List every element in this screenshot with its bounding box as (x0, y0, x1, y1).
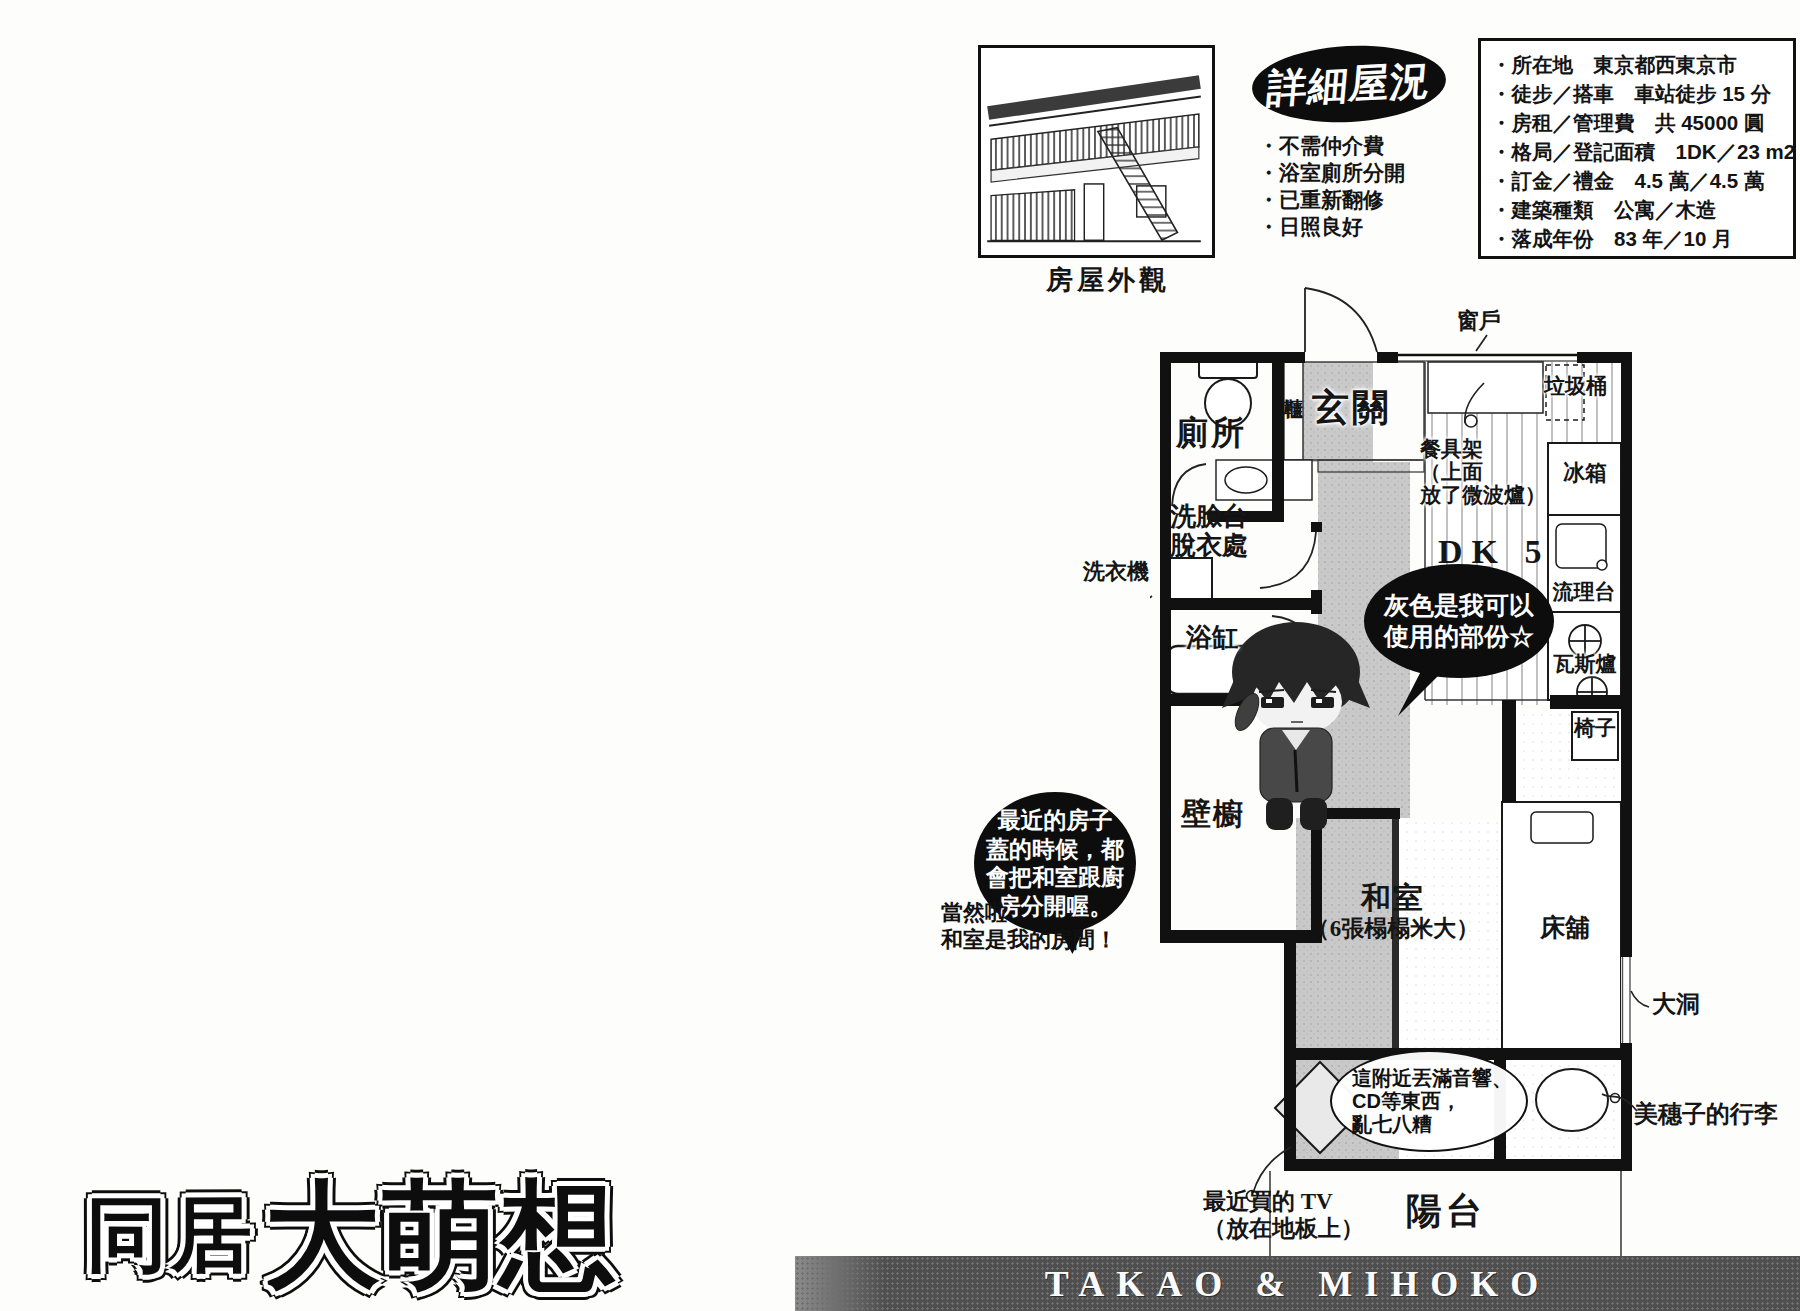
house-sketch (981, 48, 1206, 249)
hole-label: 大洞 (1652, 992, 1700, 1018)
detail-badge-label: 詳細屋況 (1265, 52, 1434, 116)
series-title-part1: 同居 (86, 1181, 254, 1291)
detail-row: ・建築種類 公寓／木造 (1491, 195, 1783, 224)
detail-row: ・徒步／搭車 車站徒步 15 分 (1491, 79, 1783, 108)
first-floor-railing (991, 190, 1075, 240)
washroom-door-arc (1260, 532, 1316, 588)
character-names: TAKAO & MIHOKO (1045, 1263, 1550, 1305)
highlight-item: ・不需仲介費 (1258, 132, 1405, 159)
chair-box (1572, 712, 1618, 760)
wall-hole (1621, 957, 1632, 1043)
roof (987, 75, 1201, 120)
hole-pointer (1631, 991, 1649, 1007)
faucet (1597, 560, 1607, 570)
ofcourse-caption: 當然啦， 和室是我的房間！ (941, 899, 1117, 953)
detail-row: ・所在地 東京都西東京市 (1491, 50, 1783, 79)
luggage-circle (1536, 1069, 1608, 1131)
washing-machine (1166, 558, 1212, 602)
messy-area-bubble: 這附近丟滿音響、 CD等東西， 亂七八糟 (1330, 1050, 1528, 1152)
pillow (1531, 812, 1593, 843)
highlight-item: ・已重新翻修 (1258, 186, 1405, 213)
highlight-item: ・浴室廁所分開 (1258, 159, 1405, 186)
detail-badge: 詳細屋況 (1250, 41, 1448, 127)
series-title-part2: 大萌想 (264, 1158, 618, 1311)
detail-row: ・訂金／禮金 4.5 萬／4.5 萬 (1491, 166, 1783, 195)
footer-bar: TAKAO & MIHOKO (795, 1256, 1800, 1311)
detail-row: ・格局／登記面積 1DK／23 m2 (1491, 137, 1783, 166)
washing-machine-label: 洗衣機 (1083, 560, 1149, 584)
toilet-bowl (1205, 379, 1251, 427)
house-photo-frame (978, 45, 1215, 258)
series-title: 同居 大萌想 (86, 1158, 618, 1311)
washer-pointer (1150, 588, 1152, 602)
gray-area-speech-bubble: 灰色是我可以 使用的部份☆ (1364, 564, 1554, 678)
kitchen-window (1428, 362, 1543, 413)
property-details-box: ・所在地 東京都西東京市 ・徒步／搭車 車站徒步 15 分 ・房租／管理費 共 … (1478, 38, 1796, 259)
toilet-door-arc (1172, 464, 1206, 506)
entrance-door-arc (1305, 288, 1377, 352)
luggage-label: 美穗子的行李 (1634, 1102, 1778, 1128)
door (1084, 184, 1103, 240)
highlight-list: ・不需仲介費 ・浴室廁所分開 ・已重新翻修 ・日照良好 (1258, 132, 1405, 240)
washbasin-bowl (1225, 467, 1267, 493)
window-pointer (1476, 335, 1487, 351)
highlight-item: ・日照良好 (1258, 213, 1405, 240)
fridge-box (1548, 443, 1621, 515)
detail-row: ・房租／管理費 共 45000 圓 (1491, 108, 1783, 137)
